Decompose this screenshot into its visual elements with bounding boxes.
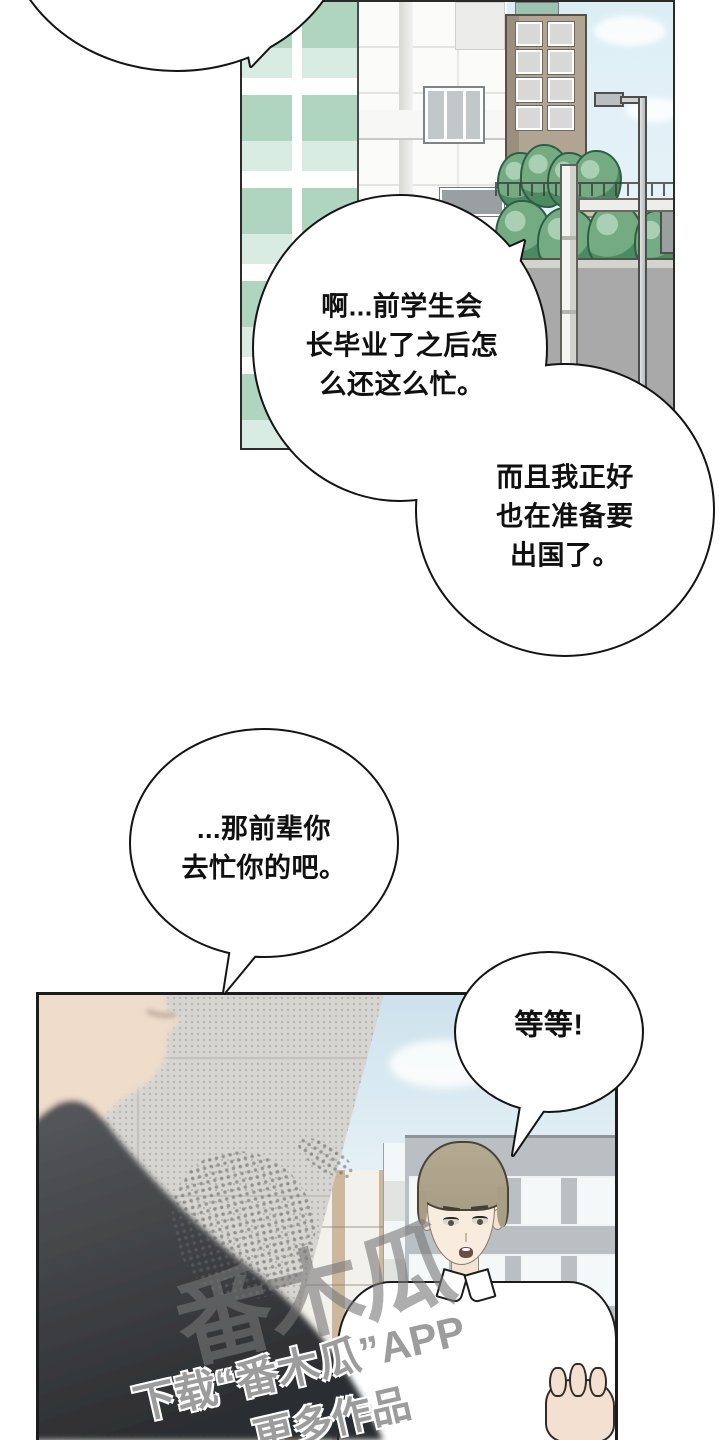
speech-text-ah: 啊...前学生会 长毕业了之后怎 么还这么忙。	[252, 288, 552, 405]
window	[516, 78, 542, 102]
cloud	[594, 16, 666, 46]
tan-windows	[507, 16, 585, 136]
white-pole	[560, 164, 578, 448]
comic-page: 番木瓜 下载“番木瓜”APP 更多作品	[0, 0, 719, 1440]
window	[548, 22, 574, 46]
foreground-blurred-figure	[39, 995, 615, 1440]
speech-text-qianbei: ...那前辈你 去忙你的吧。	[134, 810, 394, 888]
utility-box	[660, 210, 675, 254]
window	[548, 106, 574, 130]
window-band	[425, 88, 483, 142]
window	[516, 106, 542, 130]
panel-closeup-scene: 番木瓜 下载“番木瓜”APP 更多作品	[36, 992, 618, 1440]
window	[548, 78, 574, 102]
blurred-clothing	[39, 1100, 383, 1440]
speech-text-erqie: 而且我正好 也在准备要 出国了。	[435, 459, 695, 576]
street-lamp-pole	[638, 96, 647, 448]
pipe	[578, 198, 675, 212]
railing	[495, 182, 675, 196]
window	[516, 50, 542, 74]
rooftop-structure	[455, 2, 505, 50]
window	[548, 50, 574, 74]
window	[516, 22, 542, 46]
speech-text-wait: 等等!	[469, 1007, 629, 1046]
